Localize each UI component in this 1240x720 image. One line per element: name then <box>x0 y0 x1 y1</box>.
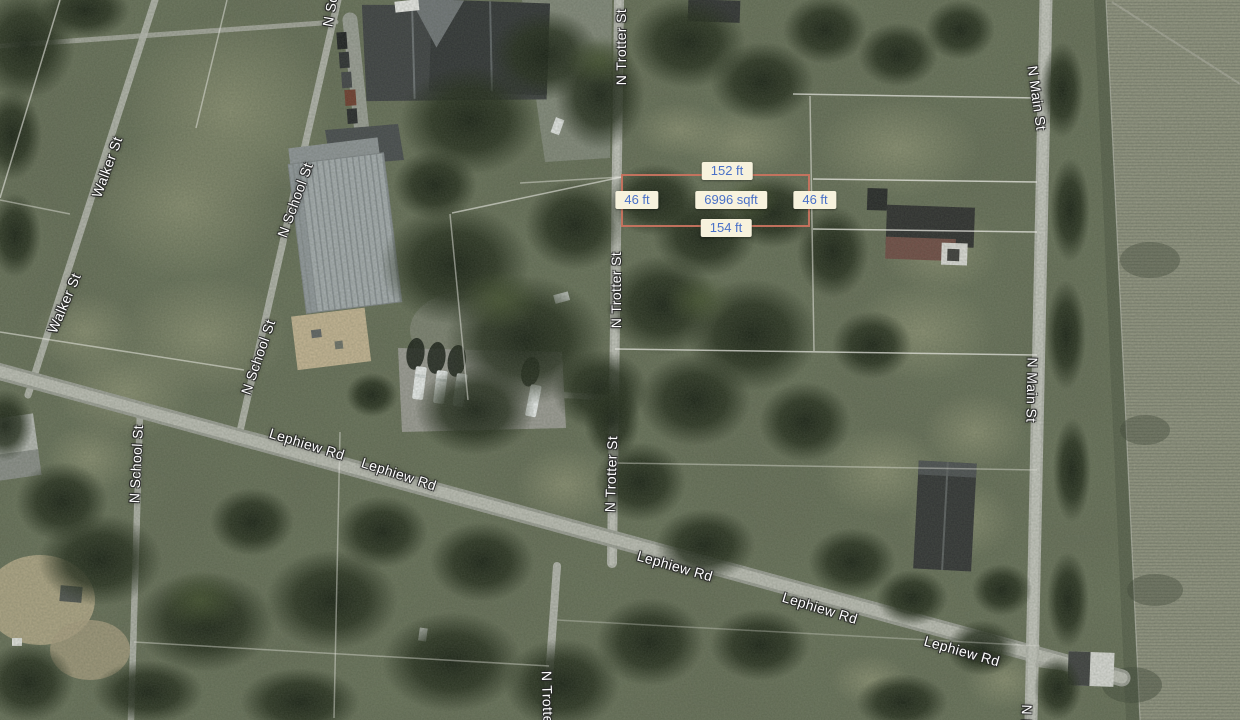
street-label-n-trotter-st-3: N Trotter St <box>602 436 621 513</box>
satellite-map-viewport[interactable]: N School St N Trotter St N Trotter St N … <box>0 0 1240 720</box>
street-label-n-trotter-st-4: N Trotter St <box>539 671 558 720</box>
parcel-dim-top: 152 ft <box>702 162 753 180</box>
noise-overlay <box>0 0 1240 720</box>
parcel-area-label: 6996 sqft <box>695 191 767 209</box>
parcel-dim-right: 46 ft <box>793 191 836 209</box>
street-label-n-main-st-2: N Main St <box>1023 357 1040 422</box>
parcel-dim-bottom: 154 ft <box>701 219 752 237</box>
street-label-n-trotter-st-2: N Trotter St <box>608 252 624 328</box>
parcel-dim-left: 46 ft <box>615 191 658 209</box>
street-label-n-trotter-st-1: N Trotter St <box>613 9 629 85</box>
satellite-imagery <box>0 0 1240 720</box>
street-label-n-main-st-3: N Main St <box>1017 704 1035 720</box>
